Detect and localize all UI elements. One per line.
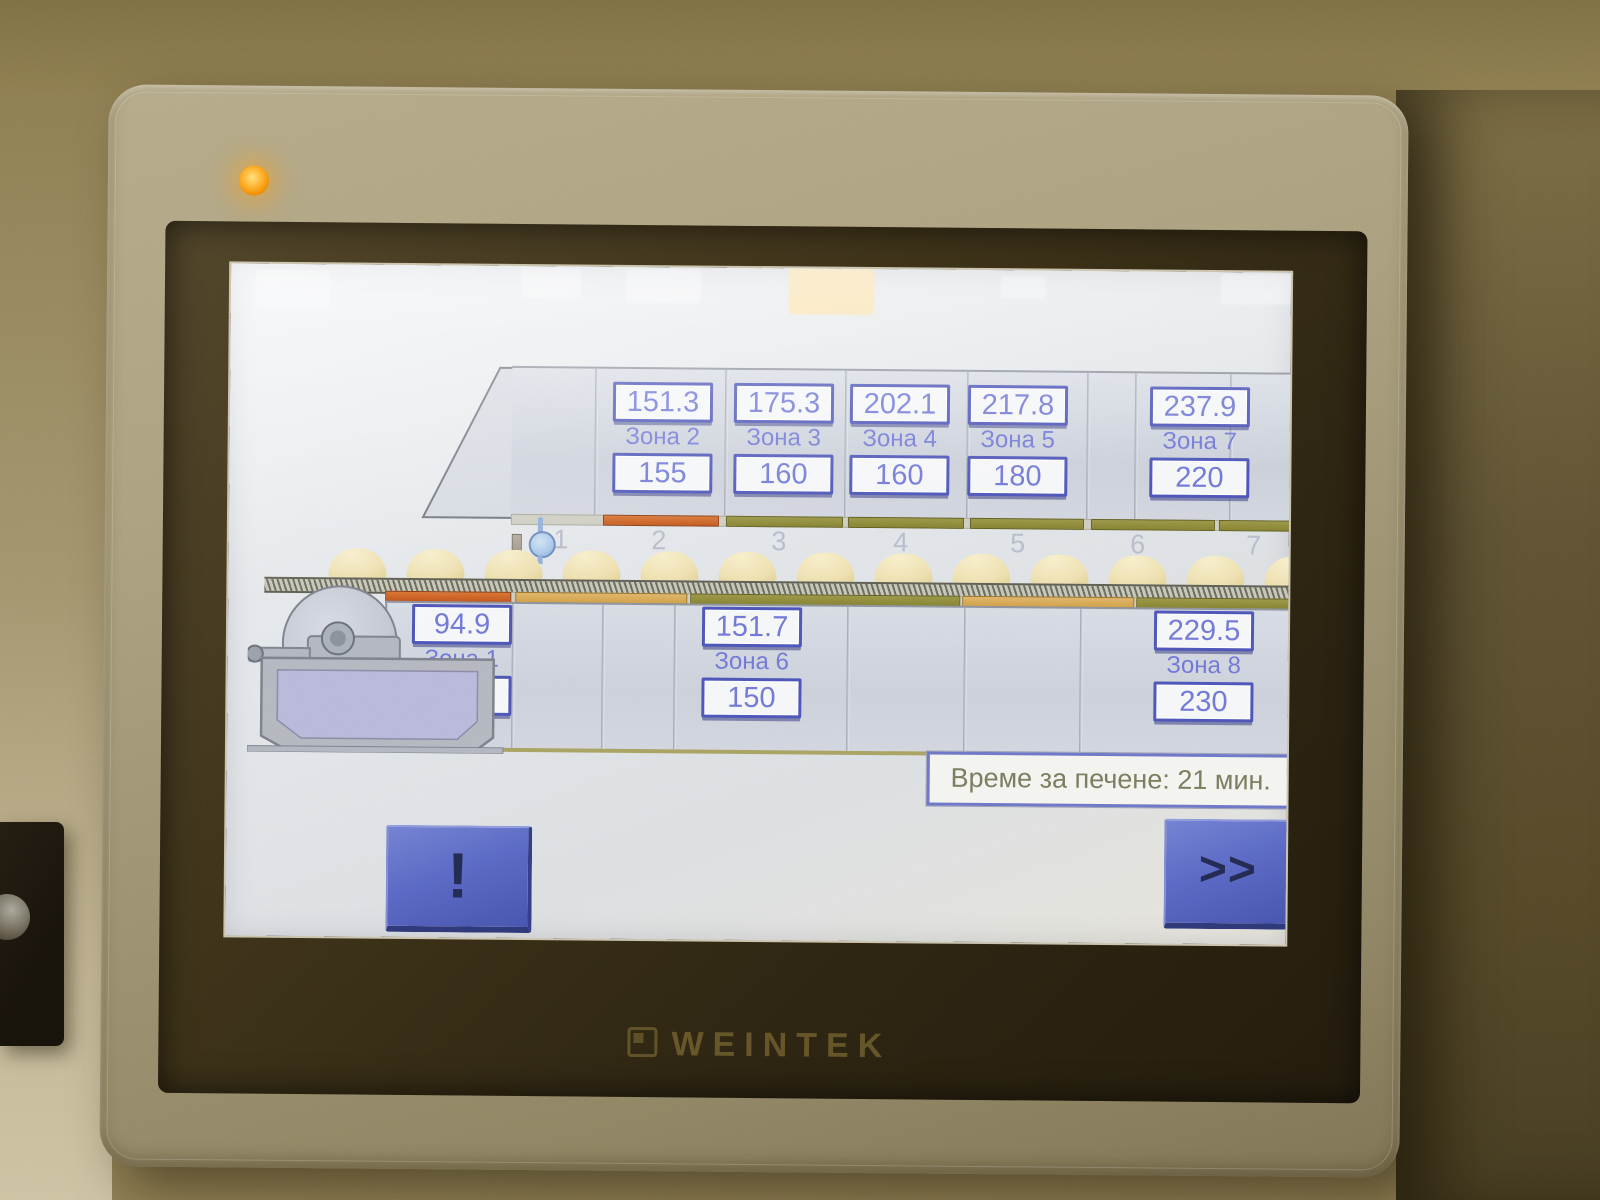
dough-piece bbox=[1108, 555, 1166, 585]
zone-6-display: 151.7 Зона 6 150 bbox=[701, 607, 802, 719]
zone-4-display: 202.1 Зона 4 160 bbox=[849, 384, 950, 496]
zone-3-pv: 175.3 bbox=[734, 383, 834, 424]
zone-5-sv-input[interactable]: 180 bbox=[967, 456, 1067, 497]
deck-divider bbox=[594, 369, 598, 521]
brand-logo-text: WEINTEK bbox=[671, 1025, 891, 1065]
zone-4-sv-input[interactable]: 160 bbox=[849, 455, 949, 496]
wall-right-shadow bbox=[1396, 90, 1600, 1200]
brand-logo-icon bbox=[627, 1027, 657, 1057]
deck-divider bbox=[601, 605, 605, 749]
zone-7-label: Зона 7 bbox=[1150, 428, 1250, 455]
zone-2-sv-input[interactable]: 155 bbox=[612, 453, 712, 494]
dough-piece bbox=[1186, 556, 1244, 586]
zone-5-label: Зона 5 bbox=[968, 427, 1068, 454]
zone-5-pv: 217.8 bbox=[968, 385, 1068, 426]
glass-reflection bbox=[1221, 274, 1291, 305]
bake-time-display: Време за печене: 21 мин. bbox=[926, 752, 1291, 809]
oven-entry-hood bbox=[419, 363, 522, 520]
deck-divider bbox=[846, 607, 850, 751]
panel-bezel: 151.3 Зона 2 155 175.3 Зона 3 160 202.1 … bbox=[158, 221, 1368, 1103]
dough-piece bbox=[1030, 554, 1088, 584]
zone-7-display: 237.9 Зона 7 220 bbox=[1149, 386, 1250, 498]
zone-4-label: Зона 4 bbox=[850, 426, 950, 453]
zone-2-pv: 151.3 bbox=[613, 382, 713, 423]
dough-piece bbox=[640, 551, 698, 581]
zone-8-display: 229.5 Зона 8 230 bbox=[1153, 610, 1254, 722]
zone-8-sv-input[interactable]: 230 bbox=[1153, 681, 1253, 722]
zone-3-display: 175.3 Зона 3 160 bbox=[733, 383, 834, 495]
zone-8-pv: 229.5 bbox=[1154, 610, 1254, 651]
zone-5-display: 217.8 Зона 5 180 bbox=[967, 385, 1068, 497]
brand-logo: WEINTEK bbox=[158, 1021, 1360, 1070]
glass-reflection bbox=[789, 268, 874, 315]
zone-3-sv-input[interactable]: 160 bbox=[733, 454, 833, 495]
alarm-button[interactable]: ! bbox=[385, 825, 532, 933]
dough-piece bbox=[796, 552, 854, 582]
deck-divider bbox=[724, 370, 728, 522]
zone-7-sv-input[interactable]: 220 bbox=[1149, 457, 1249, 498]
dough-piece bbox=[952, 554, 1010, 584]
deck-divider bbox=[1134, 373, 1138, 525]
dough-piece bbox=[718, 552, 776, 582]
zone-2-display: 151.3 Зона 2 155 bbox=[612, 382, 713, 494]
dough-piece bbox=[562, 550, 620, 580]
dough-piece bbox=[1264, 556, 1290, 586]
deck-divider bbox=[1079, 609, 1083, 753]
deck-divider bbox=[963, 608, 967, 752]
zone-6-label: Зона 6 bbox=[702, 649, 802, 676]
zone-6-sv-input[interactable]: 150 bbox=[701, 678, 801, 719]
cabinet-lock-plate bbox=[0, 822, 64, 1046]
deck-divider bbox=[673, 605, 677, 749]
zone-6-pv: 151.7 bbox=[702, 607, 802, 648]
zone-2-label: Зона 2 bbox=[613, 424, 713, 451]
hmi-panel: 151.3 Зона 2 155 175.3 Зона 3 160 202.1 … bbox=[99, 84, 1408, 1177]
next-page-button[interactable]: >> bbox=[1163, 819, 1291, 930]
deck-divider bbox=[844, 371, 848, 523]
zone-7-pv: 237.9 bbox=[1150, 386, 1250, 427]
glass-reflection bbox=[626, 269, 701, 304]
deck-divider bbox=[1086, 373, 1090, 525]
zone-3-label: Зона 3 bbox=[734, 425, 834, 452]
glass-reflection bbox=[256, 270, 331, 309]
dough-depositor-machine bbox=[247, 560, 509, 754]
dough-piece bbox=[874, 553, 932, 583]
power-led-icon bbox=[239, 165, 269, 195]
wall-top bbox=[0, 0, 1600, 96]
glass-reflection bbox=[521, 268, 581, 299]
touchscreen: 151.3 Зона 2 155 175.3 Зона 3 160 202.1 … bbox=[225, 263, 1291, 944]
cabinet-lock-knob bbox=[0, 894, 30, 940]
zone-8-label: Зона 8 bbox=[1154, 652, 1254, 679]
zone-4-pv: 202.1 bbox=[850, 384, 950, 425]
glass-reflection bbox=[1001, 276, 1046, 298]
